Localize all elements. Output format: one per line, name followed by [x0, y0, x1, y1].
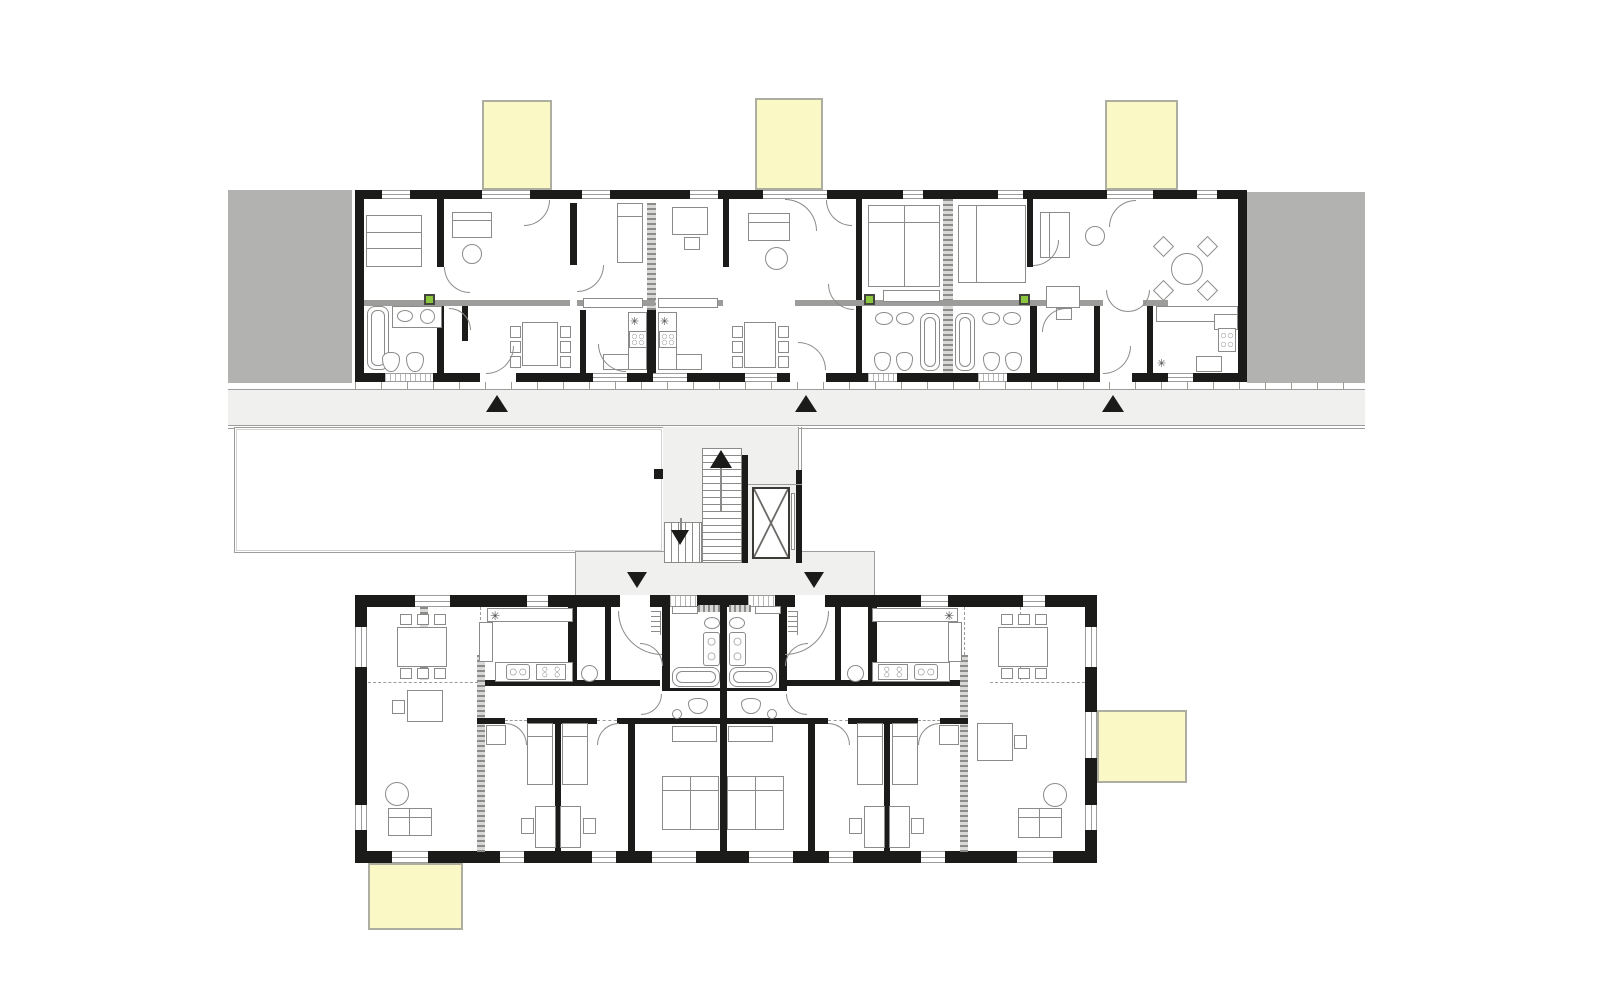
window: [1085, 627, 1097, 667]
bed-line: [976, 205, 977, 283]
door-swing: [826, 200, 852, 226]
faucet-symbol: ✳: [660, 316, 669, 327]
sink: [1003, 312, 1021, 325]
bath-wc-divider: [662, 688, 720, 691]
sofa: [1018, 808, 1062, 838]
window: [1168, 373, 1193, 382]
partition: [1147, 306, 1153, 373]
door-swing: [486, 346, 514, 374]
entrance-arrow-up-3: [1102, 395, 1124, 412]
chair: [1001, 614, 1013, 625]
door-swing: [1103, 346, 1131, 374]
floor-plan: ✳✳✳✳✳: [0, 0, 1600, 1000]
faucet-symbol: ✳: [630, 316, 639, 327]
chair: [417, 614, 429, 625]
faucet-symbol: ✳: [490, 610, 500, 622]
vent-window: [868, 373, 897, 382]
desk: [407, 690, 443, 722]
sofa-line: [409, 808, 410, 836]
bed-line: [857, 736, 883, 737]
chair: [510, 356, 521, 368]
bed-line: [662, 790, 719, 791]
chair: [778, 341, 789, 353]
desk: [977, 723, 1013, 761]
vent-window: [978, 373, 1007, 382]
toilet: [688, 698, 708, 714]
bed-line: [562, 736, 588, 737]
zone-divider-dashed: [990, 682, 1085, 683]
bedroom-wall: [628, 718, 635, 851]
dining-table: [998, 627, 1048, 667]
hob: [659, 331, 677, 348]
sofa-line: [452, 220, 492, 221]
washing-machine: [581, 665, 598, 682]
desk: [864, 806, 885, 848]
desk-chair: [684, 237, 700, 250]
party-wall: [960, 655, 968, 852]
connector-edge-5: [575, 551, 576, 595]
vanity-double: [703, 632, 720, 666]
bed: [562, 723, 588, 785]
entry-door: [790, 373, 826, 382]
door-swing: [828, 284, 854, 310]
site-block-left: [228, 190, 352, 383]
window: [653, 373, 687, 382]
chair: [434, 614, 446, 625]
door-swing: [786, 694, 807, 715]
toilet: [382, 352, 400, 372]
faucet-symbol: ✳: [944, 610, 954, 622]
kitchen-cabinet: [676, 354, 702, 370]
wardrobe: [672, 726, 717, 742]
entrance-arrow-down-1: [627, 572, 647, 588]
stair-down-arrow: [671, 530, 689, 545]
chair: [778, 356, 789, 368]
door-opening-dashed: [828, 720, 848, 721]
chair: [1153, 280, 1174, 301]
window: [749, 851, 793, 863]
bed-line: [527, 736, 553, 737]
spine-wall: [444, 300, 570, 306]
connector-edge-6: [874, 551, 875, 595]
chair: [1197, 236, 1218, 257]
partition: [437, 199, 444, 267]
window: [690, 190, 718, 199]
sink: [982, 312, 1000, 325]
sink: [704, 617, 720, 629]
chair: [1018, 614, 1030, 625]
bed-split-line: [690, 776, 691, 830]
bed-split-line: [755, 776, 756, 830]
chair: [1035, 668, 1047, 679]
sofa: [748, 213, 790, 241]
storage-box: [939, 725, 959, 745]
balcony-upper-3: [1105, 100, 1178, 190]
site-block-right: [1247, 192, 1365, 383]
side-table: [1043, 783, 1067, 807]
door-swing: [1106, 290, 1128, 312]
wc-sink: [672, 709, 682, 719]
kitchen-cabinet: [1196, 356, 1222, 372]
center-party-wall: [720, 607, 727, 851]
meter-box: [1019, 294, 1030, 305]
door-swing: [798, 342, 826, 370]
toilet: [741, 698, 761, 714]
pantry-wall: [605, 607, 611, 683]
party-wall-dashed: [964, 607, 965, 655]
connector-edge-4: [799, 551, 875, 552]
door-opening-dashed: [597, 720, 617, 721]
bath-shelf: [672, 606, 698, 614]
stair-up-arrow: [710, 450, 732, 468]
dining-table: [744, 322, 776, 368]
bed: [892, 723, 918, 785]
sofa-line: [748, 222, 790, 223]
partition: [580, 310, 586, 373]
desk: [535, 806, 556, 848]
window: [1023, 595, 1045, 607]
chair: [732, 341, 743, 353]
elevator-top-line: [748, 484, 802, 485]
hob: [536, 664, 566, 680]
toilet: [983, 352, 1000, 371]
sofa-line: [1018, 817, 1062, 818]
hob: [1218, 328, 1236, 352]
bathtub: [729, 667, 777, 687]
door-swing: [1042, 308, 1066, 332]
entrance-arrow-down-2: [804, 572, 824, 588]
upper-wall-right: [1238, 190, 1247, 382]
chair: [732, 356, 743, 368]
chair: [1001, 668, 1013, 679]
entry-door: [795, 595, 825, 607]
window: [593, 373, 627, 382]
sink: [397, 310, 413, 322]
entrance-arrow-up-1: [486, 395, 508, 412]
window: [1197, 190, 1217, 199]
window: [745, 373, 777, 382]
window: [903, 190, 923, 199]
bath-wc-divider: [727, 688, 785, 691]
window: [1017, 851, 1053, 863]
bed: [617, 203, 643, 263]
door-swing: [597, 723, 619, 745]
bed-line: [868, 222, 940, 223]
door-swing: [785, 199, 817, 231]
bedroom-zone-wall: [940, 718, 968, 724]
bed: [958, 205, 1026, 283]
bath-shelf: [755, 606, 781, 614]
window: [355, 627, 367, 667]
desk: [889, 806, 910, 848]
window: [500, 851, 524, 863]
partition: [1030, 306, 1037, 373]
window: [592, 851, 616, 863]
wardrobe: [583, 298, 643, 308]
balcony-upper-1: [482, 100, 552, 190]
upper-wall-left: [355, 190, 364, 382]
balcony-lower-left: [368, 863, 463, 930]
door-swing: [577, 265, 604, 292]
door-swing: [505, 723, 527, 745]
storage-box: [486, 725, 506, 745]
coffee-table: [462, 244, 482, 264]
door-swing: [918, 723, 940, 745]
lower-wall-top: [355, 595, 1097, 607]
chair: [560, 356, 571, 368]
dining-table: [397, 627, 447, 667]
bedroom-wall: [808, 718, 815, 851]
toilet: [896, 352, 913, 371]
partition: [856, 199, 862, 373]
faucet-symbol: ✳: [1157, 358, 1166, 369]
stair-up-arrow-stem: [720, 466, 722, 512]
sink: [420, 309, 435, 324]
bedroom-zone-wall: [477, 718, 505, 724]
partition: [1094, 306, 1100, 373]
bed-line: [366, 248, 422, 249]
desk: [1046, 286, 1080, 308]
vanity-double: [729, 632, 746, 666]
door-swing: [828, 723, 850, 745]
kitchen-sink: [506, 664, 530, 680]
bathtub: [672, 667, 720, 687]
wardrobe: [658, 298, 718, 308]
bath-wall: [662, 606, 670, 691]
bed-line: [892, 736, 918, 737]
door-swing: [444, 267, 470, 293]
bath-counter-hatch: [698, 605, 720, 612]
desk-chair: [521, 818, 534, 834]
balcony-door: [1085, 712, 1097, 758]
chair: [510, 326, 521, 338]
sofa-line: [388, 817, 432, 818]
partition: [647, 310, 656, 373]
connector-edge-3: [575, 551, 664, 552]
meter-box: [424, 294, 435, 305]
balcony-door: [763, 190, 827, 199]
window: [355, 805, 367, 830]
desk-chair: [849, 818, 862, 834]
entry-door: [1100, 373, 1132, 382]
side-table: [1085, 226, 1105, 246]
window: [921, 851, 945, 863]
window: [1085, 805, 1097, 830]
kitchen-counter: [948, 622, 962, 662]
bed: [527, 723, 553, 785]
party-wall: [477, 655, 485, 852]
door-opening-dashed: [918, 720, 940, 721]
bed: [366, 215, 422, 267]
chair: [778, 326, 789, 338]
bed-line: [617, 216, 643, 217]
partition: [570, 203, 577, 265]
walkway-bottom-line-1: [228, 425, 1365, 426]
chair: [1197, 280, 1218, 301]
chair: [1035, 614, 1047, 625]
window: [998, 190, 1023, 199]
wardrobe: [728, 726, 773, 742]
elevator-car: [752, 487, 790, 559]
zone-divider-dashed: [368, 682, 478, 683]
desk-chair: [911, 818, 924, 834]
vent-window: [385, 373, 433, 382]
desk-chair: [583, 818, 596, 834]
bathtub: [955, 313, 975, 371]
kitchen-counter: [479, 622, 493, 662]
toilet: [1005, 352, 1022, 371]
window: [382, 190, 410, 199]
door-opening-dashed: [505, 720, 527, 721]
elevator-counterweight: [791, 493, 795, 550]
balcony-upper-2: [755, 98, 823, 190]
sofa: [452, 212, 492, 238]
chair: [417, 668, 429, 679]
lower-wall-bottom: [355, 851, 1097, 863]
sink: [875, 312, 893, 325]
toilet: [874, 352, 891, 371]
paving-joint-ticks: [355, 382, 1365, 390]
door-swing: [524, 200, 550, 226]
wc-sink: [767, 709, 777, 719]
sofa: [388, 808, 432, 836]
hob: [629, 331, 647, 348]
bed: [857, 723, 883, 785]
window: [415, 595, 450, 607]
sink: [896, 312, 914, 325]
coffee-table: [765, 247, 788, 270]
bed-line: [366, 232, 422, 233]
desk-chair: [392, 700, 405, 714]
party-wall: [647, 203, 656, 310]
chair: [732, 326, 743, 338]
door-swing: [1109, 200, 1136, 227]
chair: [400, 668, 412, 679]
partition: [723, 199, 729, 267]
chair: [1153, 236, 1174, 257]
desk: [672, 207, 708, 235]
window: [652, 851, 696, 863]
pantry-wall: [835, 607, 841, 683]
chair: [560, 341, 571, 353]
desk: [560, 806, 581, 848]
balcony-door: [1107, 190, 1153, 199]
balcony-lower-right: [1097, 710, 1187, 783]
courtyard-plot-left: [234, 427, 664, 553]
entry-door: [620, 595, 650, 607]
balcony-door: [482, 190, 530, 199]
chair: [400, 614, 412, 625]
door-swing: [1033, 240, 1059, 266]
sink: [729, 617, 745, 629]
sofa-line: [1039, 808, 1040, 838]
chair: [560, 326, 571, 338]
entry-door: [480, 373, 516, 382]
desk-chair: [1014, 735, 1027, 749]
bed-split-line: [904, 205, 905, 287]
hob: [878, 664, 908, 680]
meter-box: [864, 294, 875, 305]
round-dining-table: [1171, 253, 1203, 285]
washing-machine: [847, 665, 864, 682]
stair-elevator-divider: [742, 455, 748, 563]
party-wall: [943, 199, 953, 373]
bed-line: [727, 790, 784, 791]
window: [527, 595, 548, 607]
chair: [434, 668, 446, 679]
toilet: [406, 352, 424, 372]
door-swing: [641, 694, 662, 715]
kitchen-sink: [914, 664, 938, 680]
wardrobe: [883, 290, 940, 302]
window: [829, 851, 853, 863]
window: [582, 190, 610, 199]
bathtub: [920, 313, 940, 371]
dining-table: [522, 322, 558, 366]
chair: [1018, 668, 1030, 679]
side-table: [385, 782, 409, 806]
entrance-arrow-up-2: [795, 395, 817, 412]
window: [921, 595, 948, 607]
window: [392, 851, 428, 863]
bath-counter-hatch: [729, 605, 751, 612]
